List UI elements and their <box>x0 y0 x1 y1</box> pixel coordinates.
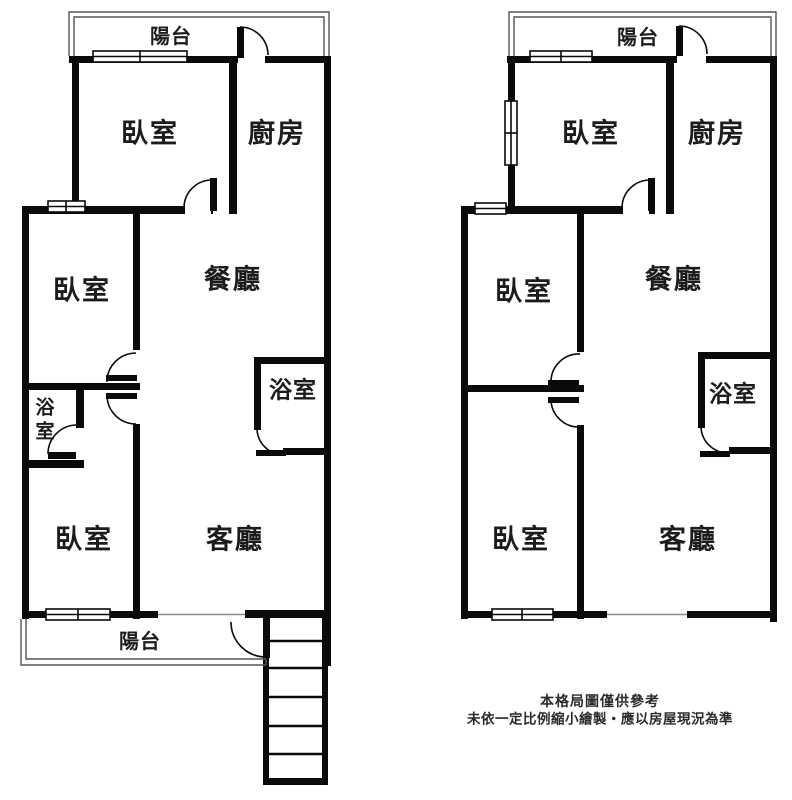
left-kitchen-label: 廚房 <box>248 121 306 148</box>
left-bathroom-label: 浴室 <box>269 380 317 403</box>
left-bedroom-mid-label: 臥室 <box>53 278 111 305</box>
right-bathroom-label: 浴室 <box>709 384 757 407</box>
left-balcony-top-label: 陽台 <box>150 26 192 46</box>
right-bedroom-mid-label: 臥室 <box>495 279 553 306</box>
left-living-label: 客廳 <box>206 527 264 554</box>
disclaimer-line-1: 本格局圖僅供參考 <box>540 695 660 709</box>
right-dining-label: 餐廳 <box>645 267 703 294</box>
floorplan-canvas <box>0 0 792 800</box>
left-bedroom-bottom-label: 臥室 <box>55 527 113 554</box>
right-bedroom-bottom-label: 臥室 <box>492 527 550 554</box>
left-bedroom-top-label: 臥室 <box>121 121 179 148</box>
right-kitchen-label: 廚房 <box>688 121 746 148</box>
floor-plan-page: 陽台 臥室 廚房 臥室 餐廳 浴室 浴室 臥室 客廳 陽台 陽台 臥室 廚房 臥… <box>0 0 792 800</box>
disclaimer-line-2: 未依一定比例縮小繪製・應以房屋現況為準 <box>467 713 733 727</box>
left-walls <box>22 56 331 785</box>
left-balcony-bottom-label: 陽台 <box>119 631 161 651</box>
left-dining-label: 餐廳 <box>204 267 262 294</box>
left-balcony-top-railing <box>69 12 329 56</box>
left-bathroom-small-label: 浴室 <box>34 397 53 445</box>
right-bedroom-top-label: 臥室 <box>562 121 620 148</box>
right-balcony-top-label: 陽台 <box>617 27 659 47</box>
left-staircase-steps <box>266 641 322 754</box>
right-living-label: 客廳 <box>659 527 717 554</box>
